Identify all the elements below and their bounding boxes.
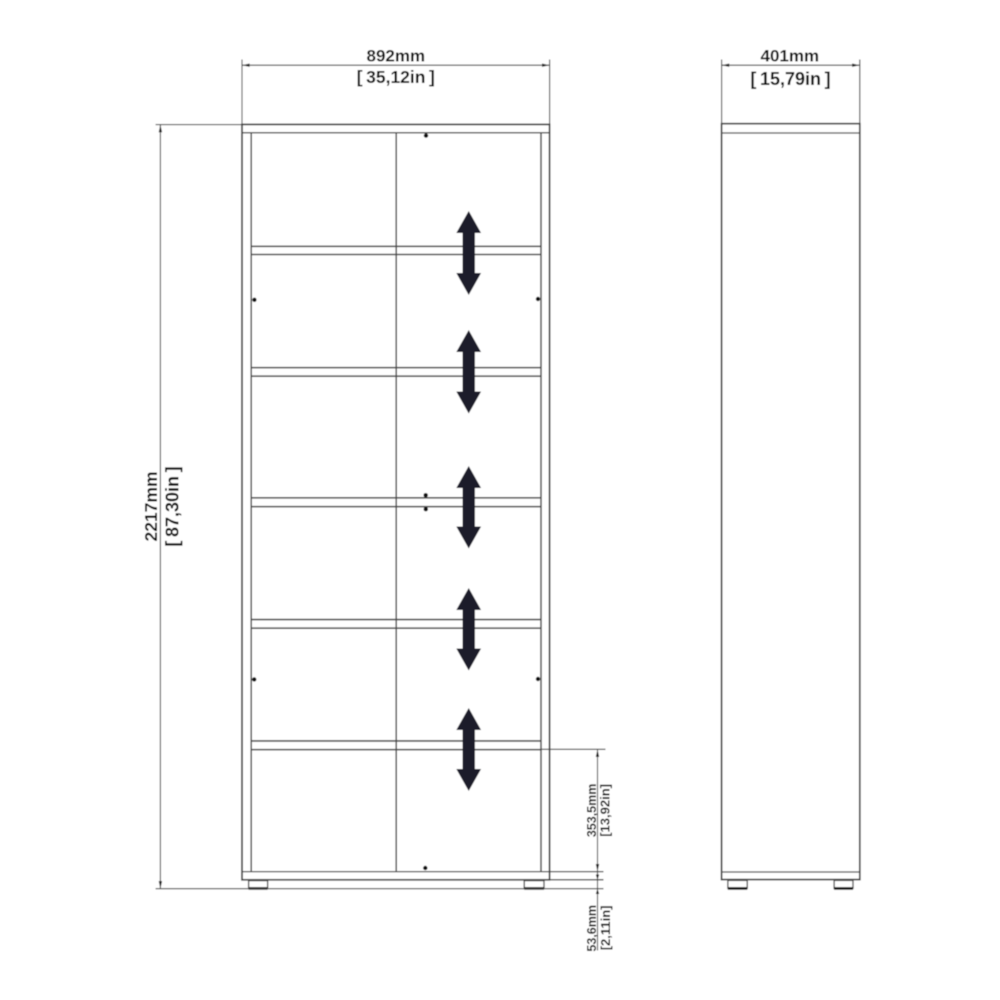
svg-text:[13,92in]: [13,92in] — [598, 784, 613, 837]
svg-text:[ 35,12in ]: [ 35,12in ] — [357, 67, 435, 87]
svg-text:892mm: 892mm — [366, 46, 425, 65]
svg-text:[2,11in]: [2,11in] — [598, 906, 613, 951]
svg-text:2217mm: 2217mm — [141, 471, 161, 541]
svg-text:[ 87,30in ]: [ 87,30in ] — [163, 466, 183, 546]
svg-text:53,6mm: 53,6mm — [585, 905, 599, 952]
svg-text:401mm: 401mm — [760, 46, 819, 65]
svg-text:[ 15,79in ]: [ 15,79in ] — [750, 69, 830, 89]
